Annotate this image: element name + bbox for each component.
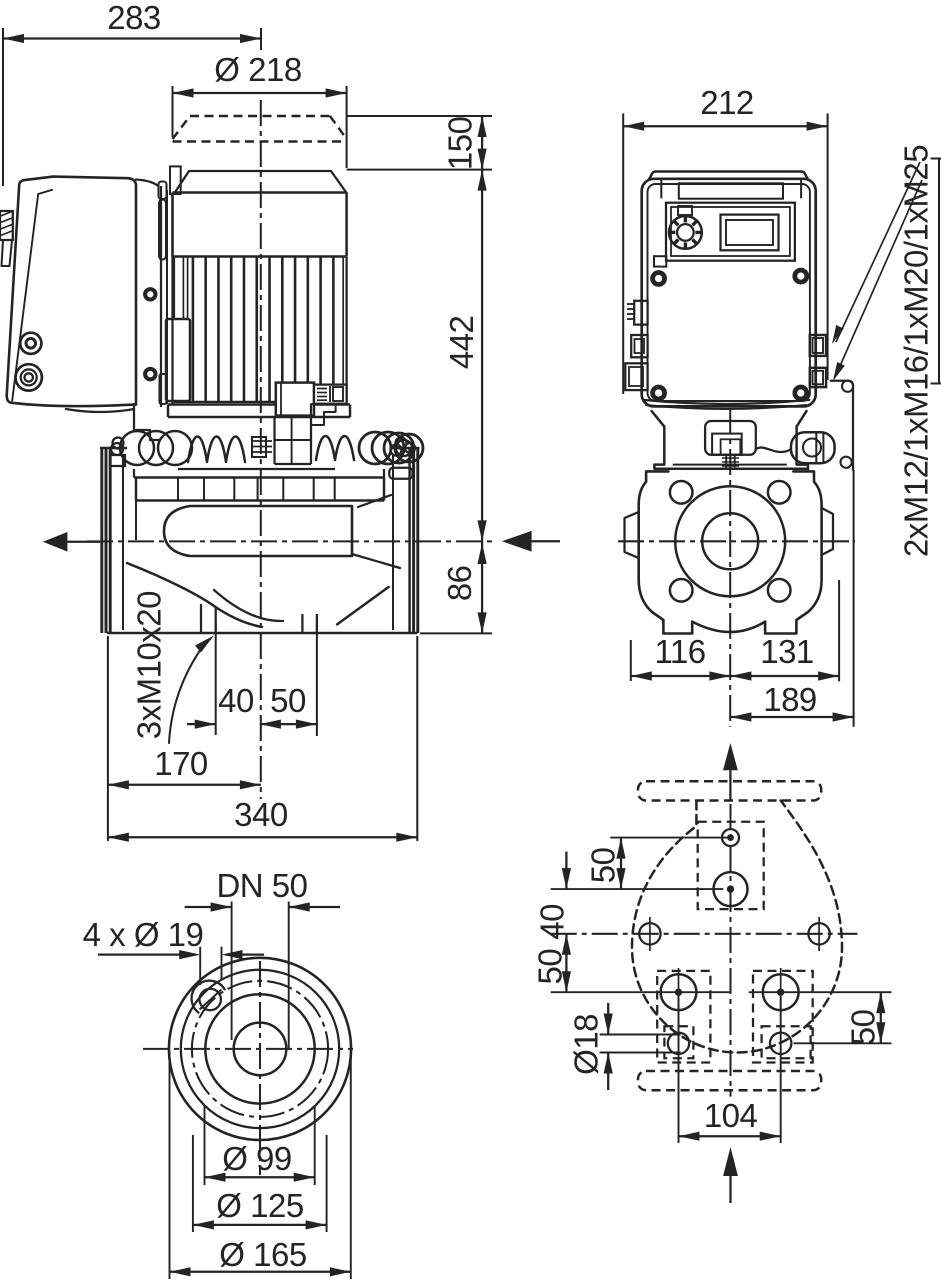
svg-text:131: 131 — [760, 633, 814, 670]
svg-text:40: 40 — [218, 682, 254, 719]
svg-text:Ø 165: Ø 165 — [219, 1236, 306, 1273]
svg-text:Ø18: Ø18 — [568, 1014, 605, 1075]
svg-text:150: 150 — [441, 116, 478, 170]
svg-text:50: 50 — [585, 847, 622, 883]
svg-text:2xM12/1xM16/1xM20/1xM25: 2xM12/1xM16/1xM20/1xM25 — [898, 145, 935, 557]
svg-text:116: 116 — [654, 633, 705, 670]
svg-text:86: 86 — [441, 565, 478, 601]
svg-text:104: 104 — [704, 1097, 758, 1134]
svg-text:442: 442 — [443, 316, 480, 370]
svg-text:212: 212 — [700, 84, 754, 121]
svg-text:DN 50: DN 50 — [216, 867, 307, 904]
svg-text:170: 170 — [154, 745, 208, 782]
svg-text:Ø 99: Ø 99 — [222, 1140, 292, 1177]
svg-text:Ø 218: Ø 218 — [214, 51, 301, 88]
svg-text:3xM10x20: 3xM10x20 — [131, 591, 168, 739]
svg-text:340: 340 — [234, 796, 288, 833]
svg-text:40: 40 — [533, 904, 570, 940]
svg-text:50: 50 — [270, 682, 306, 719]
svg-text:283: 283 — [107, 0, 161, 36]
svg-text:189: 189 — [763, 681, 817, 718]
svg-text:50: 50 — [844, 1009, 881, 1045]
svg-text:4 x Ø 19: 4 x Ø 19 — [83, 916, 204, 953]
svg-text:Ø 125: Ø 125 — [216, 1187, 303, 1224]
